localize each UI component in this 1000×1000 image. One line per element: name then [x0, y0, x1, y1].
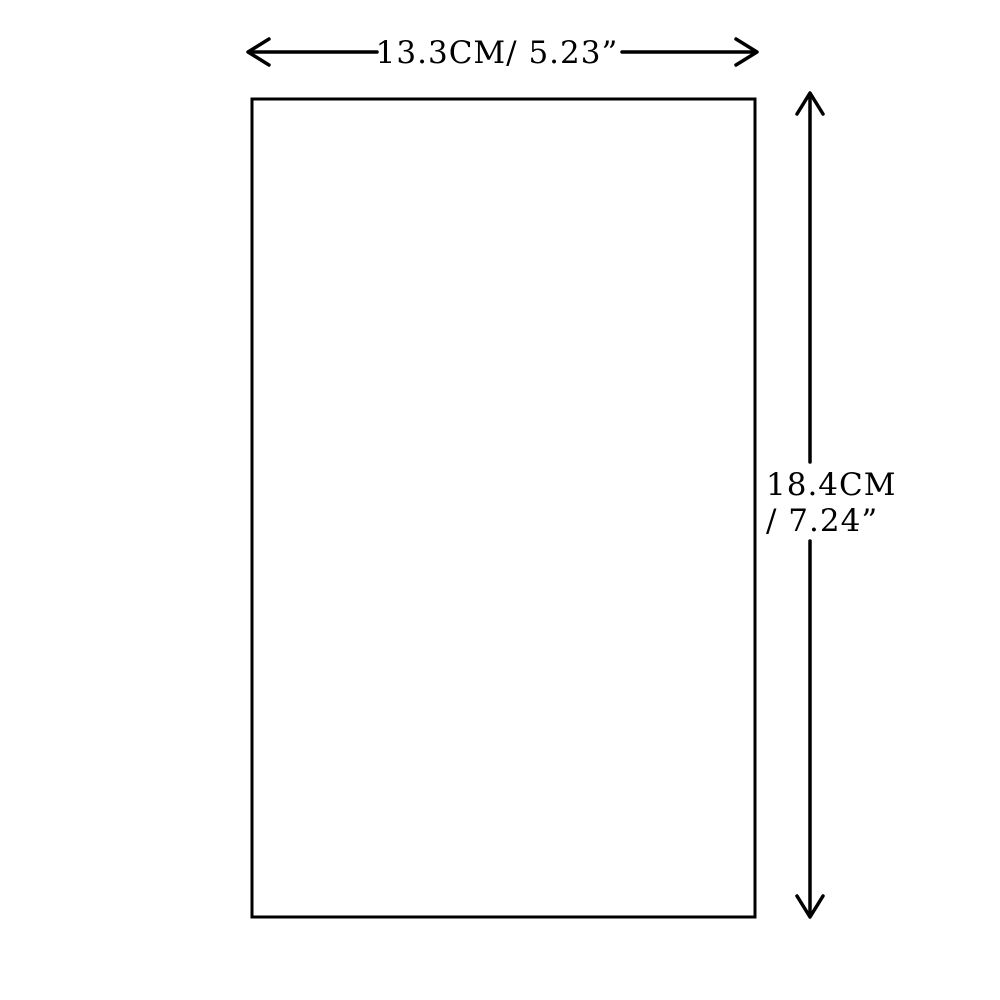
- height-dimension-label-line1: 18.4CM: [766, 467, 896, 503]
- product-outline-rectangle: [252, 99, 755, 917]
- dimension-diagram: 13.3CM/ 5.23” 18.4CM / 7.24”: [0, 0, 1000, 1000]
- width-dimension-label: 13.3CM/ 5.23”: [376, 35, 619, 71]
- height-dimension-label-line2: / 7.24”: [766, 503, 878, 539]
- dimension-diagram-svg: 13.3CM/ 5.23” 18.4CM / 7.24”: [0, 0, 1000, 1000]
